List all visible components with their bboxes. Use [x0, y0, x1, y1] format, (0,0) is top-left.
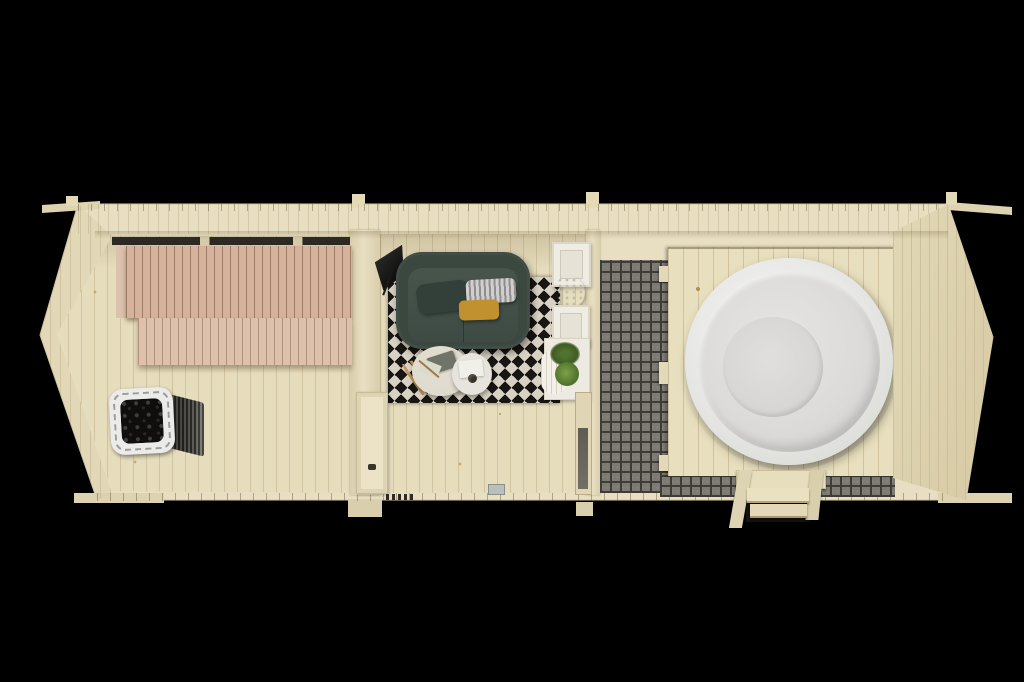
table-bowl [468, 374, 477, 383]
steps-tread-2 [750, 504, 807, 518]
coffee-table-small [452, 353, 492, 395]
render-stage [0, 0, 1024, 682]
sauna-door-panel [356, 392, 388, 494]
log-tab-bottom-2 [576, 502, 593, 516]
hot-tub [685, 258, 893, 465]
sauna-heater [110, 386, 206, 464]
pillow-mustard [459, 299, 500, 320]
coral-decor [555, 276, 585, 308]
plant-succulent [555, 362, 579, 386]
steps-tread-1 [747, 488, 809, 503]
front-wall-dashes [386, 494, 414, 500]
steps-group [730, 468, 825, 530]
sauna-door-handle [368, 464, 376, 470]
log-tab-bottom-1 [348, 500, 382, 517]
terrace-tiles-left [600, 260, 668, 493]
top-wall-log-ends [78, 204, 948, 211]
sauna-bench-upper [126, 246, 352, 318]
roof-tab-top-left [66, 196, 78, 206]
deck-support-tab-2 [659, 362, 668, 384]
deck-support-tab-3 [659, 455, 668, 471]
bench-side-panel [116, 246, 126, 318]
heater-stones [120, 398, 164, 444]
heater-top [108, 386, 175, 455]
hot-tub-floor [723, 317, 823, 417]
roof-beam-top-right [948, 202, 1012, 215]
terrace-door-glass [578, 428, 588, 489]
inner-shadow-top [95, 231, 948, 239]
sauna-bench-lower [138, 318, 352, 365]
front-wall-vent [488, 484, 505, 495]
deck-support-tab-1 [659, 266, 668, 282]
